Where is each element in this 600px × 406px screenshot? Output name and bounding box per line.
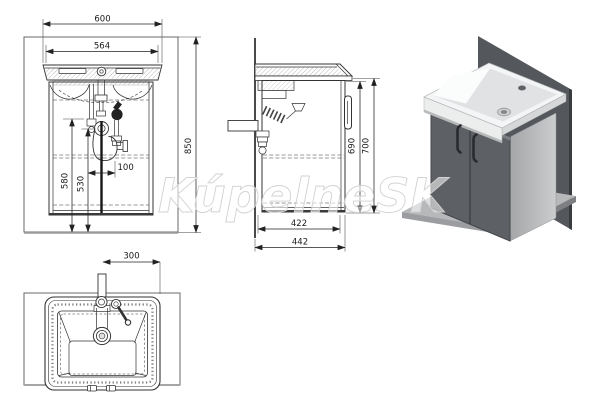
top-faucet-hole xyxy=(96,296,107,307)
basin-tap-hole xyxy=(97,67,106,76)
corrugated-hose xyxy=(264,110,284,120)
front-dim-564-label: 564 xyxy=(94,42,110,52)
top-basin xyxy=(45,296,160,391)
supply-hose xyxy=(90,84,94,119)
side-dim-690-label: 690 xyxy=(348,138,358,154)
iso-drain-hole xyxy=(501,110,507,114)
top-clip-right xyxy=(107,386,116,392)
side-countertop xyxy=(255,76,352,81)
overflow-funnel xyxy=(292,104,305,112)
iso-tap-hole xyxy=(518,86,526,91)
front-cabinet-base xyxy=(49,213,153,215)
side-handle xyxy=(345,96,352,129)
front-dim-600-label: 600 xyxy=(94,15,110,25)
front-dim-580-label: 580 xyxy=(61,173,71,189)
watermark: KúpelneSK xyxy=(158,169,450,224)
valve-stem xyxy=(113,101,122,110)
wall-outlet-pipe xyxy=(228,121,258,132)
front-dim-850-label: 850 xyxy=(184,138,194,154)
side-basin xyxy=(255,64,352,99)
top-view: 300 xyxy=(24,252,180,392)
top-clip-left xyxy=(88,386,97,392)
side-dim-442-label: 442 xyxy=(292,238,308,248)
front-dim-100-label: 100 xyxy=(118,163,134,173)
technical-drawing-canvas: 600 564 xyxy=(0,0,600,406)
basin-slot-right xyxy=(116,69,143,74)
vanity-drawing-svg: 600 564 xyxy=(0,0,600,406)
iso-wall-edge xyxy=(569,89,572,231)
basin-slot-left xyxy=(59,69,86,74)
side-dim-700-label: 700 xyxy=(362,138,372,154)
top-dim-300-label: 300 xyxy=(123,252,139,262)
top-tap-pipe xyxy=(98,274,106,297)
front-dim-530-label: 530 xyxy=(77,176,87,192)
side-plumbing xyxy=(228,104,305,155)
